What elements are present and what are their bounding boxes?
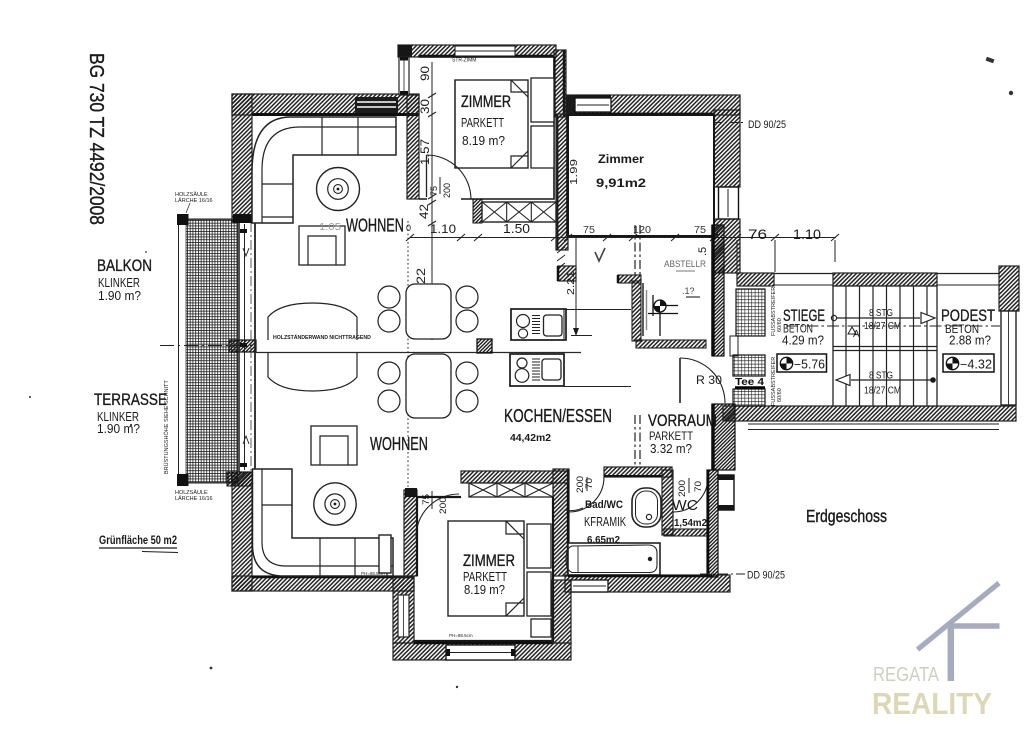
svg-text:−5.76: −5.76 bbox=[794, 358, 825, 372]
svg-text:Bad/WC: Bad/WC bbox=[585, 499, 623, 511]
svg-text:LÄRCHE 16/16: LÄRCHE 16/16 bbox=[175, 495, 213, 502]
svg-text:8 STG: 8 STG bbox=[869, 307, 893, 319]
svg-text:TERRASSE: TERRASSE bbox=[94, 390, 167, 409]
svg-text:60/60: 60/60 bbox=[777, 388, 783, 402]
svg-text:75: 75 bbox=[583, 225, 595, 236]
svg-text:1.05: 1.05 bbox=[319, 222, 341, 233]
svg-text:DD 90/25: DD 90/25 bbox=[748, 119, 786, 131]
svg-text:120: 120 bbox=[633, 225, 651, 236]
svg-text:0: 0 bbox=[406, 223, 411, 233]
svg-text:DD 90/25: DD 90/25 bbox=[747, 570, 785, 582]
svg-text:WOHNEN: WOHNEN bbox=[346, 216, 404, 236]
svg-text:200: 200 bbox=[442, 183, 452, 198]
svg-text:42: 42 bbox=[417, 204, 431, 219]
svg-text:200: 200 bbox=[677, 480, 687, 497]
svg-text:90: 90 bbox=[418, 66, 432, 81]
svg-text:1.90 m?: 1.90 m? bbox=[97, 421, 140, 436]
svg-text:VORRAUM: VORRAUM bbox=[648, 411, 717, 430]
svg-text:PH=88.5cm: PH=88.5cm bbox=[449, 633, 473, 638]
svg-text:REGATA: REGATA bbox=[873, 664, 940, 686]
svg-text:HOLZSÄULE: HOLZSÄULE bbox=[175, 489, 208, 496]
svg-text:75: 75 bbox=[694, 225, 706, 236]
svg-text:BRÜSTUNGSHÖHE SIEHE SCHNITT: BRÜSTUNGSHÖHE SIEHE SCHNITT bbox=[163, 380, 170, 474]
svg-text:8.19 m?: 8.19 m? bbox=[462, 133, 505, 148]
svg-text:R 30: R 30 bbox=[696, 373, 722, 387]
svg-text:200: 200 bbox=[438, 497, 448, 514]
svg-text:3.32 m?: 3.32 m? bbox=[650, 441, 692, 456]
svg-text:44,42m2: 44,42m2 bbox=[510, 433, 551, 444]
svg-text:1.57: 1.57 bbox=[418, 139, 432, 165]
svg-text:1.50: 1.50 bbox=[503, 221, 530, 236]
svg-text:HOLZSÄULE: HOLZSÄULE bbox=[175, 191, 208, 198]
svg-text:STR-ZIMM: STR-ZIMM bbox=[452, 58, 476, 64]
svg-text:−4.32: −4.32 bbox=[960, 358, 992, 372]
svg-text:KFRAMIK: KFRAMIK bbox=[584, 514, 626, 529]
svg-text:BG 730 TZ 4492/2008: BG 730 TZ 4492/2008 bbox=[85, 53, 107, 225]
svg-text:30: 30 bbox=[418, 99, 432, 114]
svg-text:4.29 m?: 4.29 m? bbox=[782, 333, 824, 348]
svg-text:2.88 m?: 2.88 m? bbox=[949, 333, 991, 348]
svg-text:WOHNEN: WOHNEN bbox=[370, 434, 428, 454]
svg-text:WC: WC bbox=[672, 497, 698, 514]
svg-text:8.19 m?: 8.19 m? bbox=[464, 582, 505, 597]
svg-text:ABSTELLR: ABSTELLR bbox=[664, 259, 706, 269]
svg-text:75: 75 bbox=[421, 494, 431, 505]
svg-text:LÄRCHE 16/16: LÄRCHE 16/16 bbox=[175, 197, 213, 204]
svg-text:18/27 CM: 18/27 CM bbox=[864, 320, 901, 332]
svg-text:1.10: 1.10 bbox=[793, 226, 821, 242]
svg-text:REALITY: REALITY bbox=[872, 686, 992, 721]
svg-text:70: 70 bbox=[584, 478, 594, 489]
svg-text:70: 70 bbox=[693, 481, 703, 492]
svg-text:.5: .5 bbox=[697, 247, 709, 256]
svg-text:HOLZSTÄNDERWAND NICHTTRAGEND: HOLZSTÄNDERWAND NICHTTRAGEND bbox=[273, 334, 371, 341]
svg-text:Erdgeschoss: Erdgeschoss bbox=[806, 506, 887, 526]
svg-text:1,54m2: 1,54m2 bbox=[674, 518, 707, 529]
svg-text:PH=88.5cm: PH=88.5cm bbox=[361, 571, 385, 576]
svg-text:BALKON: BALKON bbox=[97, 256, 152, 275]
svg-text:A: A bbox=[853, 329, 860, 340]
svg-text:PARKETT: PARKETT bbox=[461, 115, 504, 130]
svg-text:KOCHEN/ESSEN: KOCHEN/ESSEN bbox=[504, 406, 612, 426]
svg-text:1.10: 1.10 bbox=[430, 222, 456, 236]
svg-text:2.21: 2.21 bbox=[566, 270, 577, 295]
svg-text:75: 75 bbox=[429, 186, 439, 196]
svg-text:60/60: 60/60 bbox=[777, 318, 783, 332]
svg-text:1.99: 1.99 bbox=[569, 158, 580, 185]
svg-text:ZIMMER: ZIMMER bbox=[463, 551, 515, 570]
svg-text:8 STG: 8 STG bbox=[869, 370, 893, 382]
svg-text:ZIMMER: ZIMMER bbox=[461, 92, 511, 111]
svg-text:.1?: .1? bbox=[682, 286, 695, 296]
svg-text:76: 76 bbox=[748, 226, 767, 242]
svg-text:9,91m2: 9,91m2 bbox=[596, 176, 646, 190]
svg-text:1.90 m?: 1.90 m? bbox=[98, 288, 141, 303]
svg-text:18/27 CM: 18/27 CM bbox=[864, 385, 901, 397]
svg-text:Grünfläche 50 m2: Grünfläche 50 m2 bbox=[99, 533, 177, 547]
svg-text:Zimmer: Zimmer bbox=[598, 152, 644, 166]
